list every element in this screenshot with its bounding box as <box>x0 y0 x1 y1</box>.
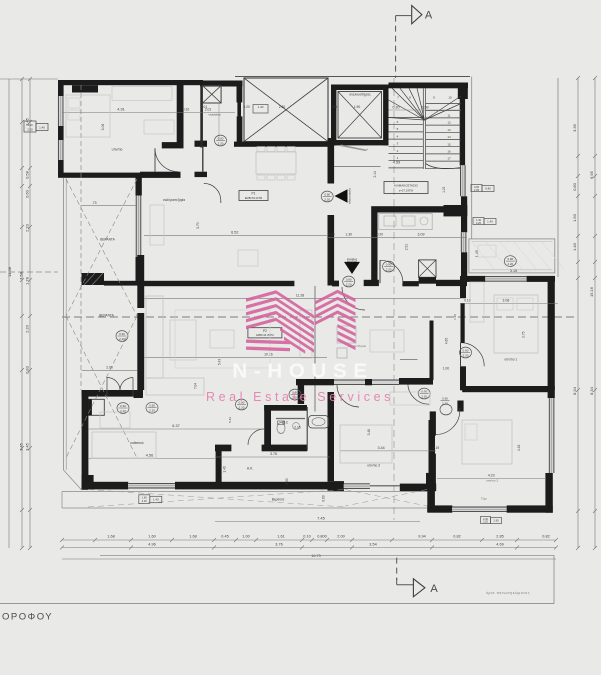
svg-text:4.96: 4.96 <box>148 543 155 547</box>
svg-text:6.52: 6.52 <box>231 230 238 234</box>
svg-text:3.45: 3.45 <box>19 442 24 451</box>
svg-text:υπν/τιο 3: υπν/τιο 3 <box>367 464 380 468</box>
svg-text:1.40: 1.40 <box>487 220 493 224</box>
svg-text:2.20: 2.20 <box>119 337 125 341</box>
svg-text:2.20: 2.20 <box>149 409 155 413</box>
svg-text:5.43: 5.43 <box>218 359 222 365</box>
svg-text:0.90: 0.90 <box>346 278 352 282</box>
svg-text:1.90: 1.90 <box>354 105 361 109</box>
svg-text:2.51: 2.51 <box>404 244 408 251</box>
svg-text:Ρ2: Ρ2 <box>263 329 267 333</box>
svg-text:0.90: 0.90 <box>386 263 392 267</box>
svg-text:σαλ/τραπεζαρία: σαλ/τραπεζαρία <box>163 198 185 202</box>
svg-text:ε=27.19ΤΜ: ε=27.19ΤΜ <box>399 188 414 192</box>
svg-text:4.69: 4.69 <box>496 543 503 547</box>
svg-text:1.90: 1.90 <box>493 519 499 523</box>
svg-text:0.60: 0.60 <box>25 189 30 198</box>
svg-text:3.75: 3.75 <box>522 331 526 338</box>
svg-text:6.37: 6.37 <box>172 424 179 428</box>
svg-text:υπν/τιο 1: υπν/τιο 1 <box>504 357 517 361</box>
svg-text:1.50: 1.50 <box>572 213 577 222</box>
svg-text:0.800: 0.800 <box>317 535 327 539</box>
svg-text:9.94: 9.94 <box>418 535 425 539</box>
svg-text:12: 12 <box>447 121 451 125</box>
svg-text:1.00: 1.00 <box>443 367 450 371</box>
svg-text:υπν/τιο 2: υπν/τιο 2 <box>486 479 498 483</box>
svg-text:2.59: 2.59 <box>422 106 429 110</box>
svg-text:1.68: 1.68 <box>107 535 114 539</box>
svg-text:1.40: 1.40 <box>572 242 577 251</box>
svg-text:0.45: 0.45 <box>221 535 228 539</box>
svg-text:3.45: 3.45 <box>25 442 30 451</box>
svg-text:0.10: 0.10 <box>303 535 310 539</box>
svg-text:2.20: 2.20 <box>27 128 33 132</box>
svg-text:3.54: 3.54 <box>369 543 376 547</box>
svg-text:2.20: 2.20 <box>239 405 245 409</box>
svg-text:Ρ1: Ρ1 <box>252 192 256 196</box>
svg-text:5.43: 5.43 <box>228 417 232 423</box>
svg-text:1.78: 1.78 <box>25 276 30 285</box>
svg-text:1.40: 1.40 <box>39 126 45 130</box>
svg-text:10.16: 10.16 <box>264 353 273 357</box>
svg-text:0.20: 0.20 <box>377 232 384 236</box>
svg-text:0.90: 0.90 <box>442 397 448 401</box>
svg-text:2.20: 2.20 <box>386 267 392 271</box>
svg-text:ντουλάπα: ντουλάπα <box>208 113 220 117</box>
svg-text:0.90: 0.90 <box>463 349 469 353</box>
svg-text:καθιστικό: καθιστικό <box>130 441 143 445</box>
svg-text:14: 14 <box>447 135 451 139</box>
svg-text:0.90: 0.90 <box>421 390 427 394</box>
svg-text:2.01: 2.01 <box>201 105 208 109</box>
svg-text:0.19: 0.19 <box>433 446 440 450</box>
svg-text:2.05: 2.05 <box>474 188 480 192</box>
svg-text:1.60: 1.60 <box>148 535 155 539</box>
svg-text:1.40: 1.40 <box>258 105 264 109</box>
svg-text:ΕΜΒ=53.44ΤΜ: ΕΜΒ=53.44ΤΜ <box>245 196 262 200</box>
svg-text:3.48: 3.48 <box>367 429 371 436</box>
svg-text:3.09: 3.09 <box>418 232 425 236</box>
svg-text:2.15: 2.15 <box>294 426 301 430</box>
svg-text:0.80: 0.80 <box>485 187 491 191</box>
svg-text:0.20: 0.20 <box>393 106 400 110</box>
svg-text:2.20: 2.20 <box>476 221 482 225</box>
svg-text:4.91: 4.91 <box>117 108 124 112</box>
svg-text:1.00: 1.00 <box>242 535 249 539</box>
svg-text:16.75: 16.75 <box>311 554 321 558</box>
svg-text:ΒΕΡΑΝΤΑ: ΒΕΡΑΝΤΑ <box>100 238 115 242</box>
svg-text:2.20: 2.20 <box>142 499 148 503</box>
svg-text:.73: .73 <box>92 201 97 205</box>
svg-text:2.20: 2.20 <box>25 324 30 333</box>
svg-text:4.16: 4.16 <box>517 445 521 452</box>
svg-text:πλατύσκαλο: πλατύσκαλο <box>348 188 352 205</box>
svg-text:0.10: 0.10 <box>183 108 190 112</box>
svg-text:1.21: 1.21 <box>442 186 446 193</box>
svg-text:2.20: 2.20 <box>463 353 469 357</box>
svg-text:3.39: 3.39 <box>572 123 577 132</box>
svg-text:Τζμρ: Τζμρ <box>481 496 487 500</box>
svg-text:6.95: 6.95 <box>589 170 594 179</box>
svg-text:3.15: 3.15 <box>510 269 517 273</box>
svg-text:2.20: 2.20 <box>421 394 427 398</box>
svg-text:ΒΕΡΑΝΤΑ: ΒΕΡΑΝΤΑ <box>99 314 114 318</box>
svg-text:Βεράντα: Βεράντα <box>272 498 285 502</box>
svg-text:3.06: 3.06 <box>101 124 105 131</box>
svg-text:2.85: 2.85 <box>496 535 503 539</box>
svg-text:17: 17 <box>447 157 451 161</box>
svg-text:4.59: 4.59 <box>393 161 400 165</box>
svg-text:κουζίνα: κουζίνα <box>347 259 357 263</box>
svg-text:14.48: 14.48 <box>7 266 12 277</box>
svg-text:1.60: 1.60 <box>142 495 148 499</box>
svg-text:1.30: 1.30 <box>345 232 352 236</box>
svg-text:8.34: 8.34 <box>572 386 577 395</box>
svg-text:11: 11 <box>447 114 450 118</box>
svg-text:0.20: 0.20 <box>243 105 250 109</box>
svg-text:0.90: 0.90 <box>324 193 330 197</box>
svg-text:2.20: 2.20 <box>442 401 448 405</box>
svg-text:0.60: 0.60 <box>322 495 326 501</box>
svg-text:όρια πανωσηκώματος: όρια πανωσηκώματος <box>486 591 530 595</box>
svg-text:N - H O U S E: N - H O U S E <box>232 360 367 383</box>
svg-text:Real Estate Services: Real Estate Services <box>206 390 394 404</box>
svg-text:1.90: 1.90 <box>27 123 33 127</box>
svg-text:2.20: 2.20 <box>324 197 330 201</box>
svg-text:3.76: 3.76 <box>270 452 277 456</box>
svg-text:3.76: 3.76 <box>275 543 282 547</box>
svg-text:0.82: 0.82 <box>453 535 460 539</box>
svg-text:4.56: 4.56 <box>146 454 153 458</box>
svg-text:2.14: 2.14 <box>373 171 377 178</box>
svg-text:1.40: 1.40 <box>153 498 159 502</box>
svg-text:2.20: 2.20 <box>285 478 289 484</box>
svg-text:13: 13 <box>447 128 451 132</box>
svg-text:4.23: 4.23 <box>488 474 495 478</box>
svg-text:2.60: 2.60 <box>279 105 286 109</box>
svg-text:0.58: 0.58 <box>25 170 30 179</box>
svg-text:2.20: 2.20 <box>218 141 224 145</box>
svg-text:2.20: 2.20 <box>483 521 488 524</box>
svg-text:0.90: 0.90 <box>218 137 224 141</box>
svg-text:2.00: 2.00 <box>337 535 344 539</box>
svg-text:0.20: 0.20 <box>328 232 335 236</box>
svg-text:15: 15 <box>447 142 451 146</box>
svg-text:7.04: 7.04 <box>194 383 198 389</box>
svg-text:1.40: 1.40 <box>223 466 227 472</box>
svg-text:1.61: 1.61 <box>277 535 284 539</box>
svg-text:7.45: 7.45 <box>317 516 326 521</box>
svg-text:3.08: 3.08 <box>502 299 509 303</box>
svg-text:16: 16 <box>447 150 451 154</box>
svg-text:W.C: W.C <box>282 420 289 424</box>
svg-text:0.83: 0.83 <box>25 365 30 374</box>
svg-text:2.20: 2.20 <box>25 223 30 232</box>
svg-text:A: A <box>430 583 438 595</box>
svg-text:15.16: 15.16 <box>589 286 594 297</box>
svg-text:0.80: 0.80 <box>572 182 577 191</box>
svg-text:7.58: 7.58 <box>19 271 24 280</box>
svg-text:ανελκυστήρας: ανελκυστήρας <box>349 93 371 97</box>
svg-text:2.20: 2.20 <box>346 282 352 286</box>
svg-text:ΟΡΟΦΟΥ: ΟΡΟΦΟΥ <box>2 612 53 623</box>
svg-text:0.82: 0.82 <box>542 535 549 539</box>
svg-text:ΚΛΙΜΑΚΟΣΤΑΣΙΟ: ΚΛΙΜΑΚΟΣΤΑΣΙΟ <box>394 184 419 188</box>
svg-text:2.20: 2.20 <box>507 262 513 266</box>
svg-text:0.90: 0.90 <box>507 257 513 261</box>
svg-text:8.34: 8.34 <box>589 386 594 395</box>
svg-text:4.65: 4.65 <box>445 338 449 345</box>
svg-text:11.28: 11.28 <box>296 294 304 298</box>
svg-text:2.00: 2.00 <box>106 365 113 369</box>
svg-text:1.46: 1.46 <box>453 314 457 320</box>
svg-text:0.20: 0.20 <box>331 105 338 109</box>
svg-text:A: A <box>425 10 433 22</box>
svg-text:1.68: 1.68 <box>189 535 196 539</box>
svg-text:0.90: 0.90 <box>119 332 125 336</box>
svg-text:10: 10 <box>448 96 452 100</box>
svg-text:3.70: 3.70 <box>196 222 200 229</box>
svg-text:0.90: 0.90 <box>149 404 155 408</box>
svg-text:υπν/τιο: υπν/τιο <box>112 148 123 152</box>
svg-text:ΕΜΒ=44.45ΤΜ: ΕΜΒ=44.45ΤΜ <box>256 333 273 337</box>
svg-text:Η.Κ.: Η.Κ. <box>247 467 254 471</box>
svg-text:3.44: 3.44 <box>378 446 385 450</box>
svg-text:0.90: 0.90 <box>120 404 126 408</box>
